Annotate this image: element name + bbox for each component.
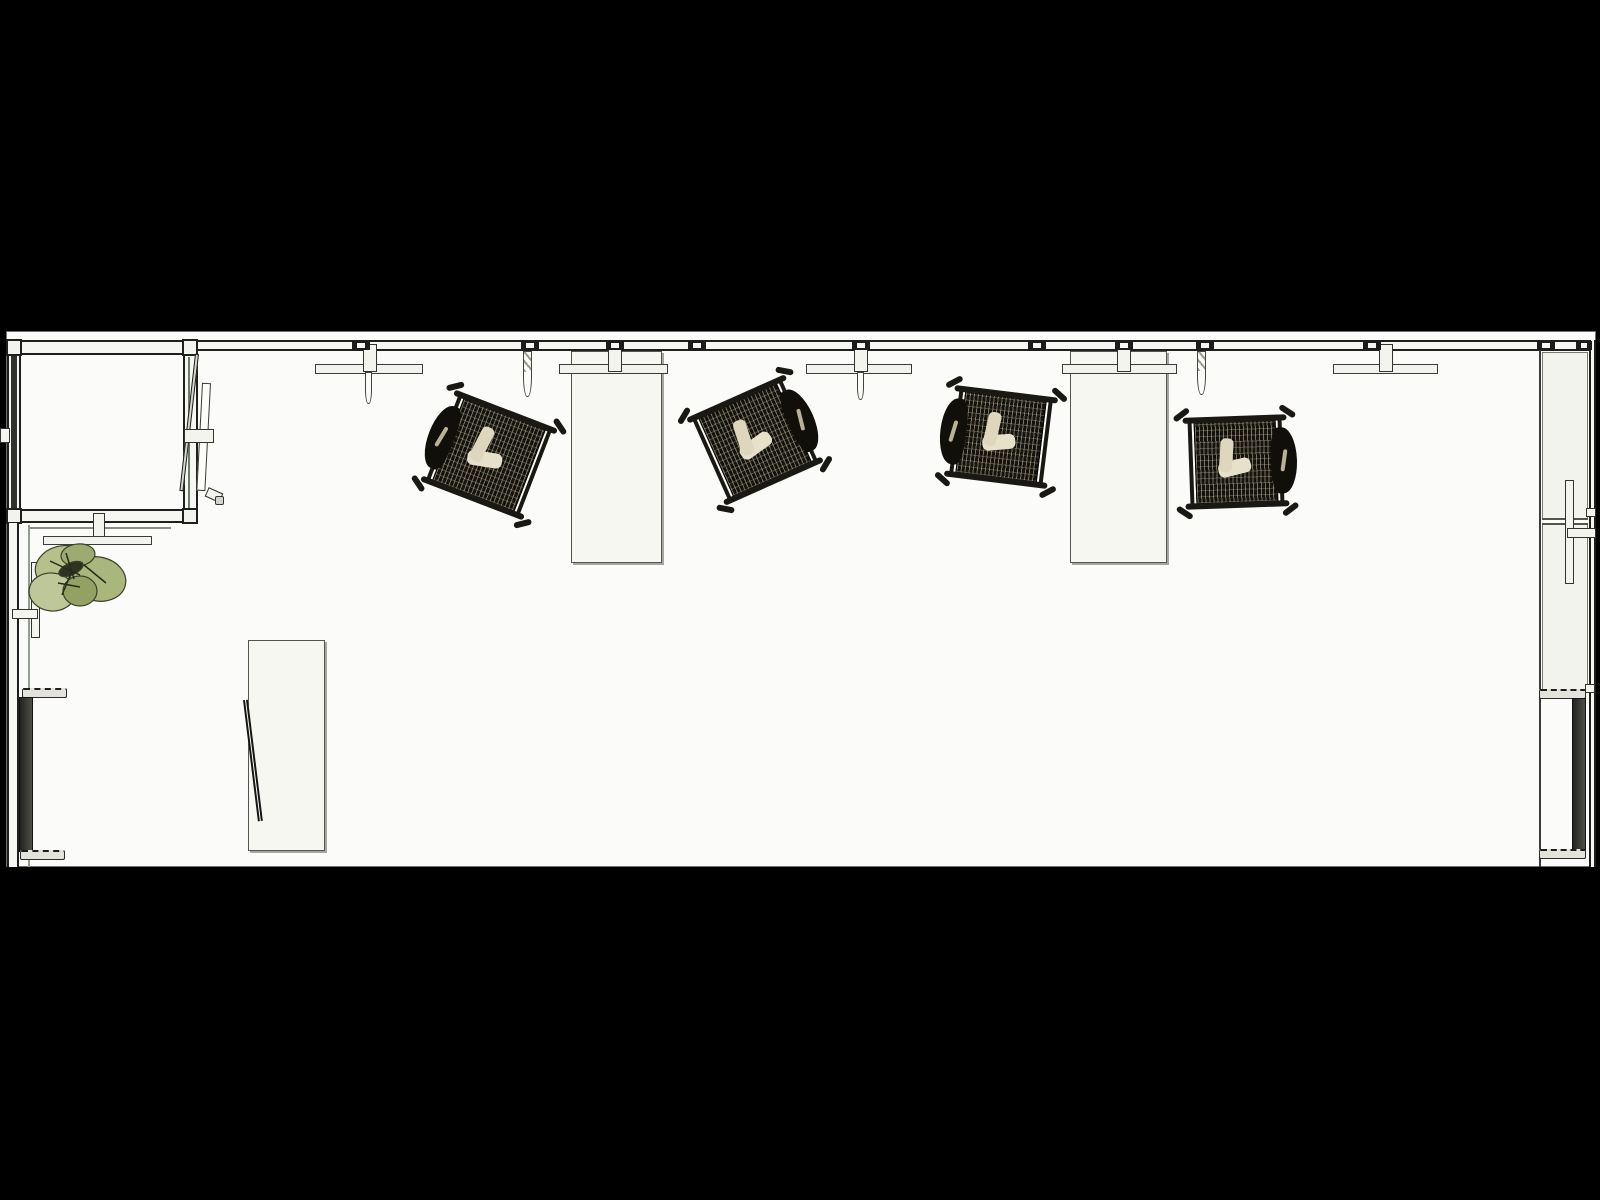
office-chair-3 [950,389,1052,486]
wall-post [182,508,198,524]
wall-clamp [1196,341,1214,350]
desk-2 [1070,351,1167,563]
plant [22,535,134,623]
right-wall-tab [1585,684,1595,693]
door-knob [215,496,224,505]
hanging-slat [365,372,372,404]
left-wall-tab [0,428,10,443]
desk-1 [571,351,662,563]
wall-clamp [1028,341,1046,350]
room-left-dark-panel [11,352,17,515]
wall-post [6,508,22,524]
door-bracket [184,429,214,443]
display-stand-foot [20,850,65,860]
office-chair-4 [1189,417,1284,506]
wall-clamp [521,341,539,350]
wall-right-inner-line [1539,343,1541,867]
wall-right-outer [1589,340,1596,867]
wall-post [6,339,22,356]
wall-clamp [606,341,624,350]
right-bracket-horizontal [1567,528,1596,538]
wall-clamp [852,341,870,350]
hanging-slat [523,351,532,397]
wall-clamp [1363,341,1381,350]
wall-clamp [1537,341,1555,350]
display-stand-foot [1539,849,1586,859]
wall-clamp [1576,341,1592,350]
wall-clamp [352,341,370,350]
wall-bracket [1379,344,1393,372]
display-screen-left [19,697,33,852]
room-wall-top [7,340,198,355]
drawing-stage [0,0,1600,1200]
wall-clamp [1115,341,1133,350]
wall-left-lower [7,523,19,867]
wall-clamp [688,341,706,350]
floor-plan [0,0,1600,1200]
plant-foliage [22,535,134,623]
right-wall-tab [1586,508,1596,517]
hanging-slat [1197,351,1206,395]
display-screen-right [1572,698,1586,851]
hanging-slat [857,372,864,400]
